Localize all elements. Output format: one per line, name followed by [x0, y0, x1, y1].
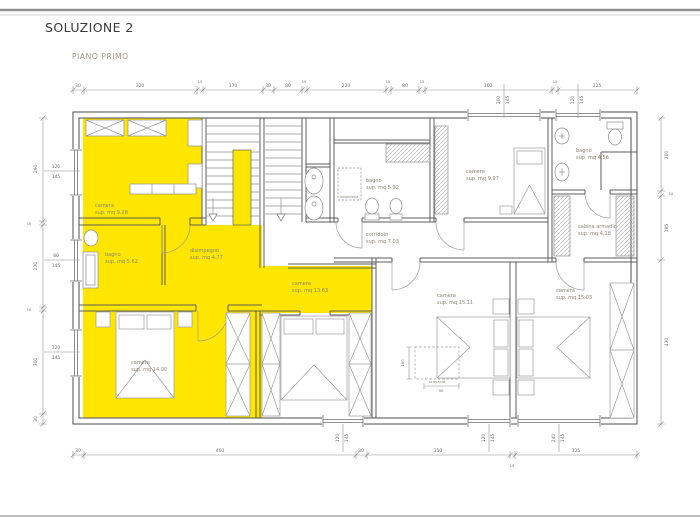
room-label-camera-1363-area: sup. mq 13.63 — [292, 288, 328, 294]
dim-right-3: 430 — [664, 338, 670, 347]
room-label-cabina-name: cabina armadio — [578, 224, 617, 230]
window-label-left-3-w: 120 — [52, 345, 61, 351]
room-label-bagno-592-area: sup. mq 5.92 — [366, 185, 399, 191]
dim-top-12: 15 — [553, 79, 558, 84]
dim-left-4: 300 — [33, 358, 39, 367]
window-label-top-2-w: 120 — [570, 96, 576, 105]
staircase-2 — [265, 126, 302, 221]
page-title: SOLUZIONE 2 — [45, 20, 134, 35]
dim-bottom-0: 30 — [75, 448, 81, 454]
dim-top-1: 320 — [136, 83, 145, 89]
dim-desk-width: 90 — [439, 388, 444, 393]
room-label-camera-1503-name: camera — [556, 288, 575, 294]
room-label-camera-1503-area: sup. mq 15.03 — [556, 295, 592, 301]
dim-left-2: 230 — [33, 262, 39, 271]
dim-bottom-3: 350 — [434, 448, 443, 454]
floor-plan-drawing: SOLUZIONE 2 PIANO PRIMO — [0, 0, 700, 525]
window-label-bottom-1-w: 120 — [335, 434, 341, 443]
furniture-camera-1503 — [517, 283, 634, 418]
dim-bottom-4: 325 — [572, 448, 581, 454]
dim-bottom-2: 30 — [358, 448, 364, 454]
window-label-left-1-h: 145 — [52, 174, 61, 180]
room-label-camera-1511-area: sup. mq 15.11 — [437, 300, 473, 306]
dim-top-7: 220 — [342, 83, 351, 89]
dim-right-0: 200 — [664, 151, 670, 160]
window-label-bottom-2-w: 120 — [481, 434, 487, 443]
room-label-camera-928-area: sup. mq 9.28 — [95, 210, 128, 216]
dim-left-1: 10 — [27, 222, 32, 226]
room-label-bagno-456-name: bagno — [576, 148, 592, 154]
room-label-camera-1363-name: camera — [292, 281, 311, 287]
window-label-bottom-3-w: 240 — [551, 434, 557, 443]
dim-right-2: 185 — [664, 224, 670, 233]
dim-top-5: 80 — [285, 83, 291, 89]
window-label-top-2-h: 145 — [579, 96, 585, 105]
dim-top-11: 360 — [484, 83, 493, 89]
left-dimension-labels: 290 10 230 10 300 30 — [27, 165, 39, 422]
window-label-left-1-w: 120 — [52, 164, 61, 170]
room-label-scrivania: scrivania — [429, 380, 445, 384]
room-label-cabina-area: sup. mq 4.18 — [578, 231, 611, 237]
room-label-camera-1511-name: camera — [437, 293, 456, 299]
room-label-bagno-562-area: sup. mq 5.62 — [105, 259, 138, 265]
dim-top-9: 80 — [402, 83, 408, 89]
dim-left-0: 290 — [33, 165, 39, 174]
room-label-disimpegno-name: disimpegno — [190, 248, 219, 254]
room-label-camera-928-name: camera — [95, 203, 114, 209]
window-label-top-1-h: 145 — [505, 96, 511, 105]
window-label-left-2-h: 145 — [52, 263, 61, 269]
dim-left-5: 30 — [33, 416, 39, 422]
window-label-left-2-w: 80 — [53, 253, 59, 259]
window-label-bottom-2-h: 145 — [490, 434, 496, 443]
dim-bottom-1: 460 — [216, 448, 225, 454]
dim-top-13: 225 — [593, 83, 602, 89]
dim-top-4: 30 — [265, 83, 271, 89]
fixtures-bagno-562 — [83, 230, 98, 288]
top-dimension-line — [71, 86, 640, 94]
window-label-bottom-1-h: 145 — [344, 434, 350, 443]
page-subtitle: PIANO PRIMO — [72, 52, 129, 61]
dim-bottom-gap: 15 — [510, 463, 515, 468]
staircase-1 — [206, 126, 260, 225]
dim-top-2: 15 — [198, 79, 203, 84]
room-label-corridoio-name: corridoio — [366, 232, 388, 238]
room-label-camera-1400-name: camera — [131, 360, 150, 366]
dim-top-6: 15 — [302, 79, 307, 84]
dim-top-10: 15 — [420, 79, 425, 84]
dim-top-0: 30 — [75, 83, 81, 89]
right-dimension-labels: 200 10 185 430 — [664, 151, 674, 347]
right-dimension-line — [657, 116, 665, 427]
left-dimension-line — [39, 116, 47, 427]
room-label-bagno-456-area: sup. mq 4.56 — [576, 155, 609, 161]
window-label-bottom-3-h: 145 — [560, 434, 566, 443]
room-label-bagno-562-name: bagno — [105, 252, 121, 258]
bottom-dimension-labels: 30 460 30 350 325 15 — [75, 448, 580, 468]
dim-left-3: 10 — [27, 308, 32, 312]
room-label-corridoio-area: sup. mq 7.03 — [366, 239, 399, 245]
furniture-camera-997 — [435, 126, 545, 214]
dim-right-1: 10 — [669, 192, 674, 196]
top-dimension-labels: 30 320 15 170 30 80 15 220 15 80 15 360 … — [75, 79, 601, 89]
room-label-lavanderia: lavanderia — [340, 195, 359, 199]
window-label-left-3-h: 145 — [52, 355, 61, 361]
dim-desk-height: 100 — [400, 359, 405, 367]
window-label-top-1-w: 200 — [496, 96, 502, 105]
bottom-dimension-line — [71, 451, 640, 459]
floor-plan-sheet: SOLUZIONE 2 PIANO PRIMO — [0, 0, 700, 525]
dim-top-3: 170 — [229, 83, 238, 89]
room-label-camera-1400-area: sup. mq 14.00 — [131, 367, 167, 373]
furniture-middle-bedroom — [262, 313, 371, 416]
room-label-camera-997-name: camera — [466, 169, 485, 175]
room-label-bagno-592-name: bagno — [366, 178, 382, 184]
room-label-camera-997-area: sup. mq 9.97 — [466, 176, 499, 182]
room-label-disimpegno-area: sup. mq 4.77 — [190, 255, 223, 261]
dim-top-8: 15 — [386, 79, 391, 84]
